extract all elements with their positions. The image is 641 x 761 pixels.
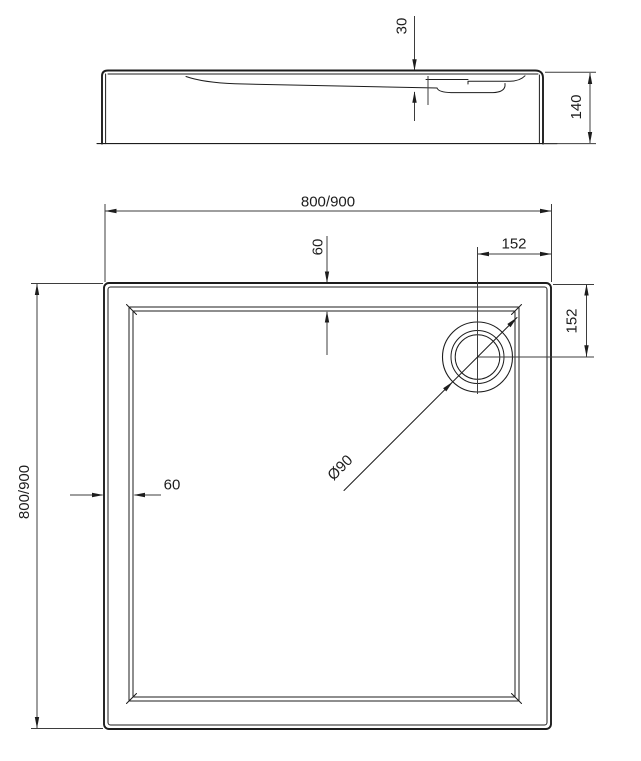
dim-152right-arrow-down: [584, 345, 588, 357]
dim-60left-arrow-left: [134, 493, 146, 497]
side-view-drain-pocket: [437, 84, 505, 93]
dimension-drain-diameter: Ø90: [324, 318, 517, 491]
plan-rim-outer-line: [129, 307, 519, 701]
dim-152right-arrow-up: [584, 284, 588, 296]
dim-30-label: 30: [394, 18, 411, 35]
technical-drawing-canvas: 30 140 800/900 800/900: [0, 0, 641, 761]
side-view-basin-floor: [186, 77, 437, 89]
dim-152top-arrow-right: [540, 252, 552, 256]
dim-60top-arrow-down: [325, 272, 329, 284]
dim-height-arrow-up: [35, 284, 39, 296]
dimension-drain-offset-vertical: 152: [553, 284, 594, 357]
dimension-drain-offset-horizontal: 152: [478, 236, 552, 257]
plan-rim-inner-line: [133, 311, 515, 697]
dimension-rim-width-left: 60: [70, 477, 180, 498]
dim-140-arrow-down: [588, 132, 592, 144]
side-view-pocket-ledge: [426, 76, 525, 84]
dim-152right-label: 152: [564, 308, 581, 333]
dim-60top-arrow-up: [325, 311, 329, 323]
dim-140-label: 140: [568, 94, 585, 119]
dim-60top-label: 60: [310, 239, 327, 256]
dim-height-arrow-down: [35, 717, 39, 729]
dim-width-arrow-right: [540, 209, 552, 213]
dim-60left-arrow-right: [92, 493, 104, 497]
dim-60left-label: 60: [164, 477, 181, 494]
dim-width-arrow-left: [105, 209, 117, 213]
dim-30-arrow-up: [412, 91, 416, 103]
dim-152top-label: 152: [501, 236, 526, 253]
plan-rim-corner-mitres: [127, 305, 522, 704]
drain-diameter-label: Ø90: [324, 452, 356, 484]
dimension-overall-height: 800/900: [16, 284, 103, 729]
drain-leader-line: [344, 318, 517, 491]
dim-height-label: 800/900: [16, 465, 33, 519]
dimension-overall-width: 800/900: [105, 194, 552, 283]
dim-width-label: 800/900: [301, 194, 355, 211]
dimension-rim-width-top: 60: [310, 236, 330, 355]
dim-30-arrow-down: [412, 59, 416, 71]
dim-152top-arrow-left: [478, 252, 490, 256]
dim-140-arrow-up: [588, 73, 592, 85]
side-view: [97, 71, 557, 144]
dimension-basin-depth: 30: [394, 16, 429, 121]
dimension-total-height: 140: [543, 72, 596, 143]
